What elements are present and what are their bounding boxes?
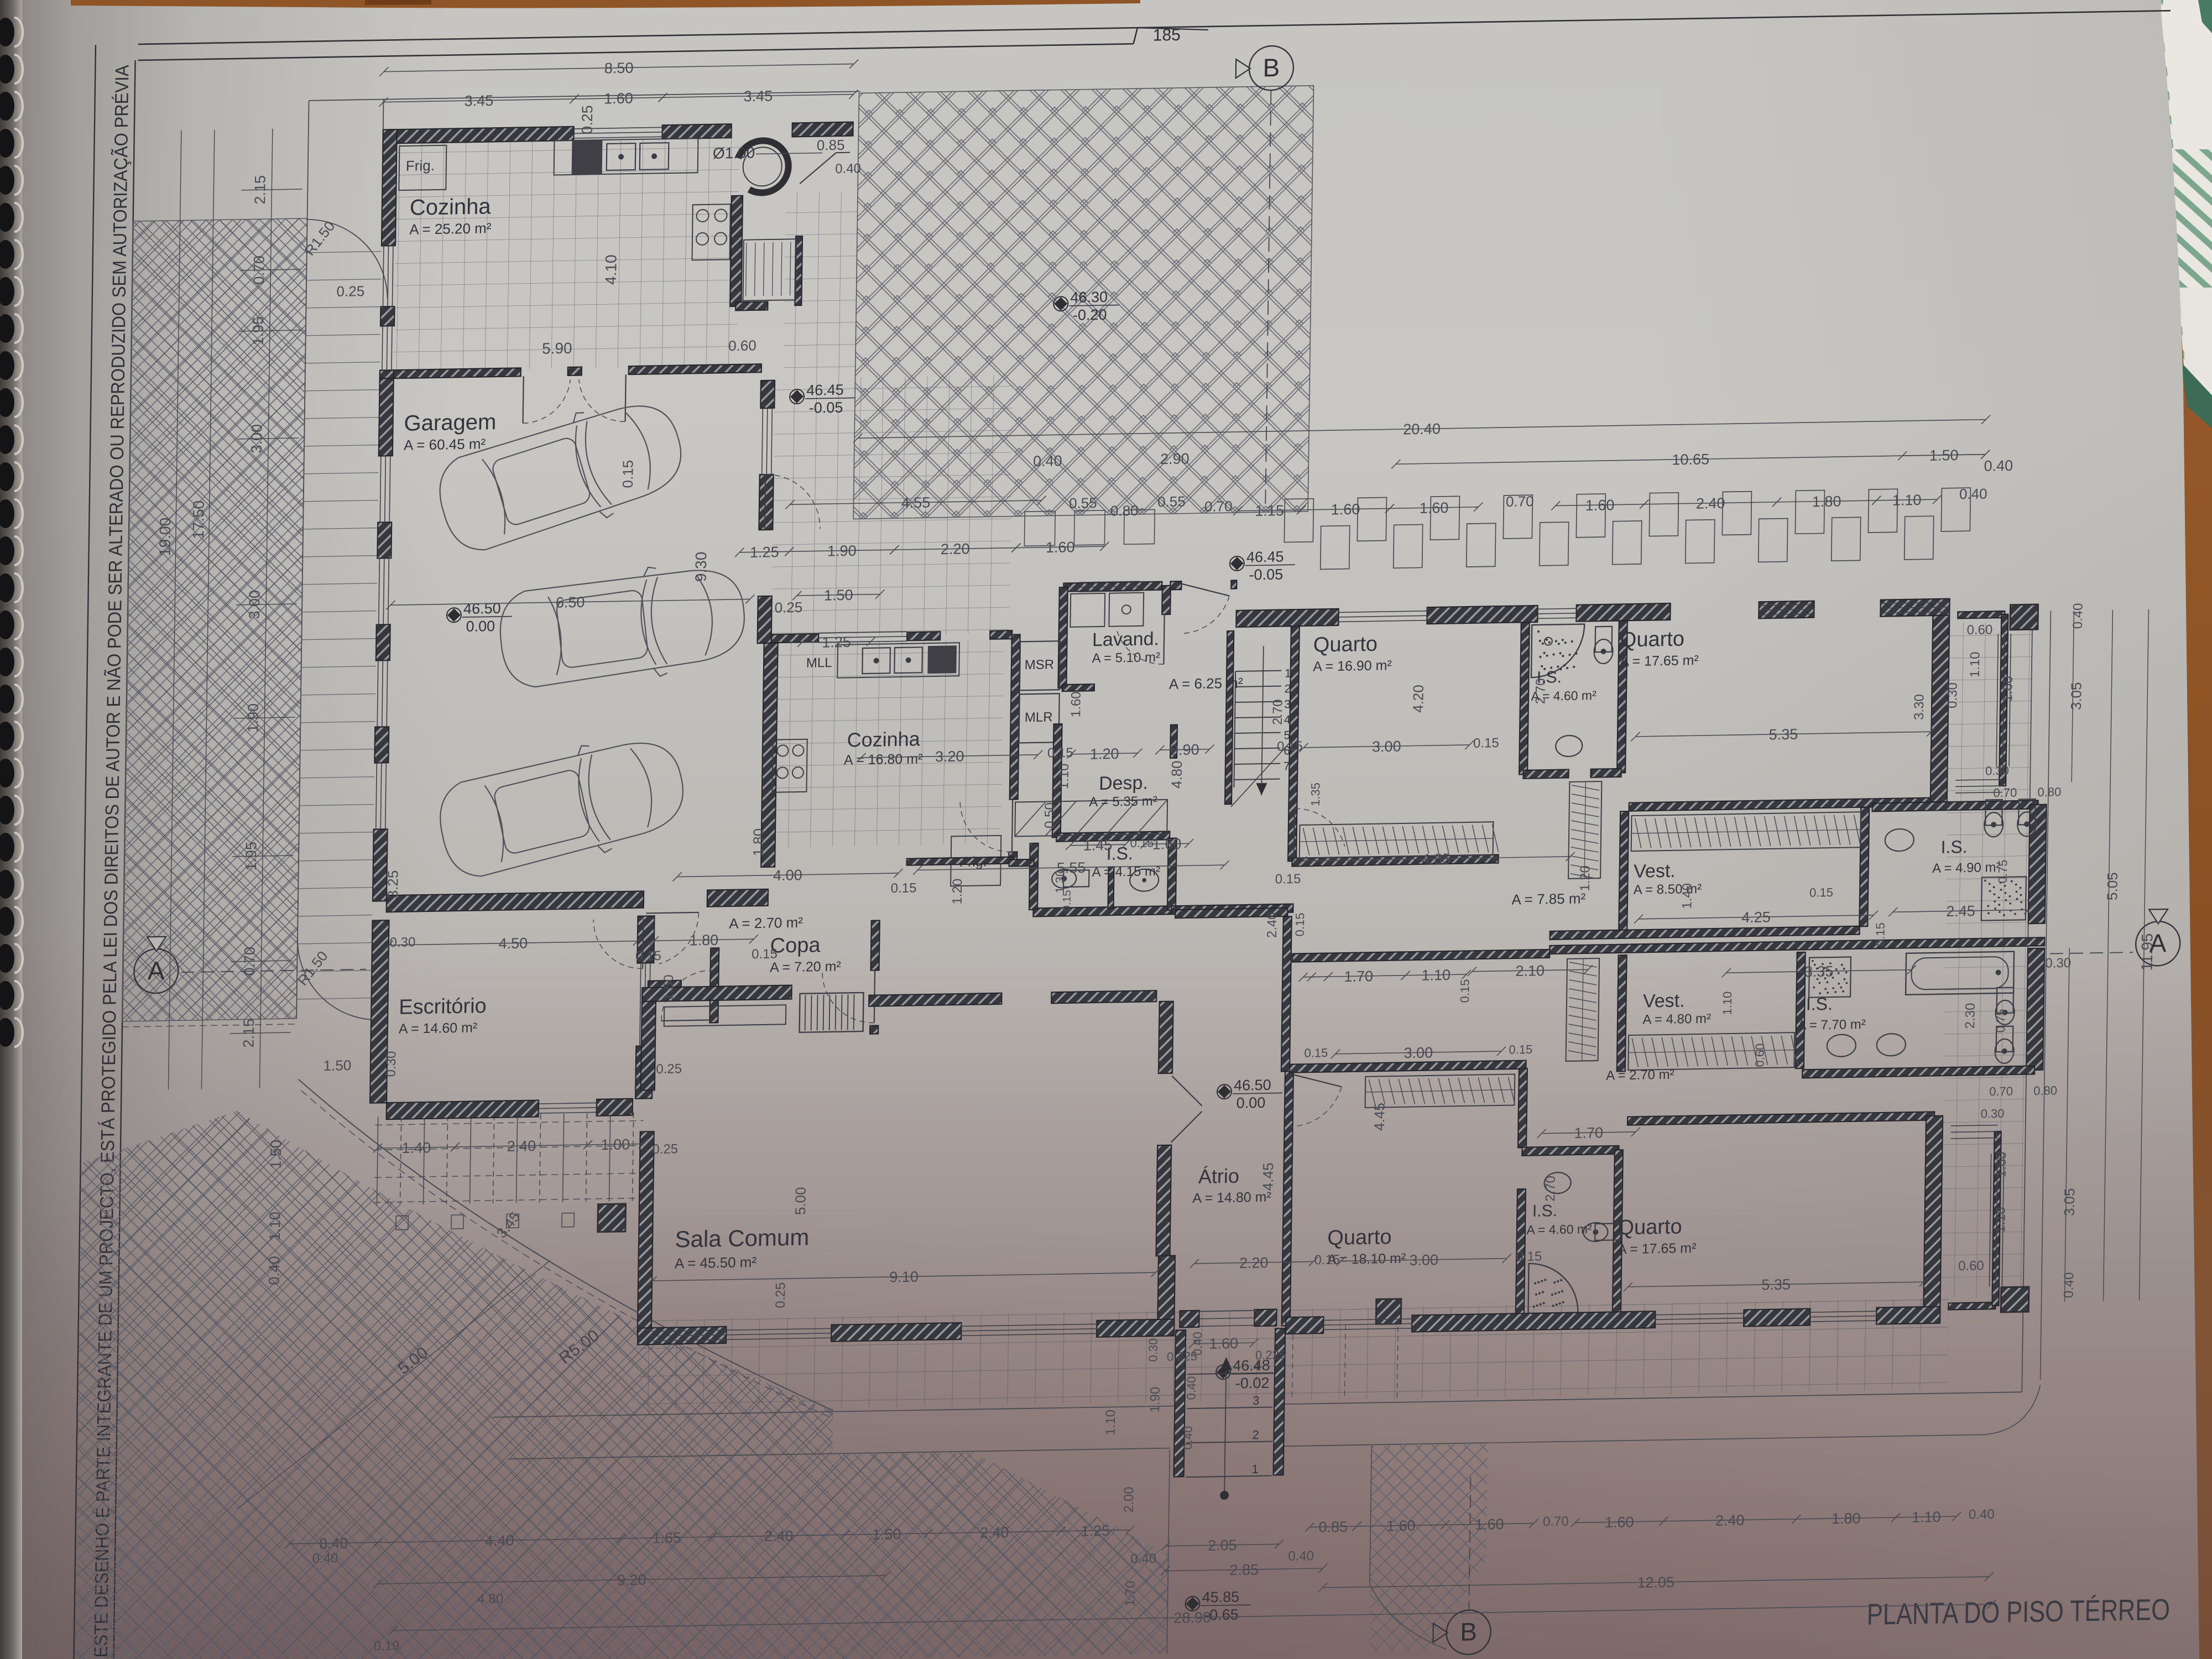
svg-text:17.50: 17.50 xyxy=(190,500,207,540)
svg-text:5.00: 5.00 xyxy=(792,1187,809,1215)
svg-text:4.80: 4.80 xyxy=(477,1591,503,1606)
svg-text:2.85: 2.85 xyxy=(1229,1561,1259,1578)
svg-text:1.90: 1.90 xyxy=(1147,1386,1163,1412)
svg-text:0.60: 0.60 xyxy=(728,337,757,354)
svg-text:I.S.: I.S. xyxy=(1532,1202,1557,1220)
svg-text:1.70: 1.70 xyxy=(1123,1580,1138,1606)
svg-text:1.80: 1.80 xyxy=(750,828,767,857)
svg-text:2.05: 2.05 xyxy=(1208,1537,1237,1554)
svg-text:1.60: 1.60 xyxy=(1420,499,1449,517)
svg-text:0.30: 0.30 xyxy=(1985,764,2009,778)
svg-text:2.40: 2.40 xyxy=(1715,1512,1745,1529)
svg-text:4.20: 4.20 xyxy=(1410,685,1427,713)
svg-text:B: B xyxy=(1460,1617,1477,1646)
svg-text:1.10: 1.10 xyxy=(1892,492,1922,509)
svg-text:4.50: 4.50 xyxy=(498,935,528,952)
svg-text:1.80: 1.80 xyxy=(1832,1510,1861,1527)
svg-text:8.50: 8.50 xyxy=(604,60,634,77)
svg-text:1.10: 1.10 xyxy=(1968,651,1983,677)
svg-text:1.20: 1.20 xyxy=(950,879,966,905)
svg-text:0.15: 0.15 xyxy=(1473,735,1499,751)
svg-text:A = 4.90 m²: A = 4.90 m² xyxy=(1932,860,2001,876)
svg-text:5.90: 5.90 xyxy=(542,340,572,357)
svg-text:0.70: 0.70 xyxy=(1204,498,1233,515)
svg-text:5.35: 5.35 xyxy=(1768,726,1798,743)
svg-text:0.75: 0.75 xyxy=(1994,1009,2008,1032)
svg-text:2.45: 2.45 xyxy=(1946,902,1975,920)
svg-text:4.45: 4.45 xyxy=(1260,1162,1277,1191)
svg-text:1.35: 1.35 xyxy=(1308,782,1323,806)
svg-text:6.50: 6.50 xyxy=(556,594,585,611)
svg-text:0.80: 0.80 xyxy=(1110,502,1139,519)
svg-text:2.70: 2.70 xyxy=(1270,699,1286,725)
svg-text:0.40: 0.40 xyxy=(1984,457,2013,474)
svg-text:0.40: 0.40 xyxy=(1033,452,1062,469)
svg-text:Vest.: Vest. xyxy=(1643,990,1685,1011)
svg-text:1.60: 1.60 xyxy=(1475,1516,1504,1533)
svg-text:9.10: 9.10 xyxy=(889,1269,919,1286)
svg-text:0.15: 0.15 xyxy=(752,947,778,962)
svg-text:0.25: 0.25 xyxy=(579,105,596,134)
svg-text:0.60: 0.60 xyxy=(1958,1258,1984,1274)
svg-text:3.00: 3.00 xyxy=(1404,1044,1433,1061)
svg-text:0.40: 0.40 xyxy=(2070,603,2086,629)
svg-text:0.40: 0.40 xyxy=(266,1256,283,1285)
svg-text:0.15: 0.15 xyxy=(1509,1042,1532,1057)
svg-text:-0.02: -0.02 xyxy=(1235,1375,1270,1392)
svg-text:0.25: 0.25 xyxy=(656,1061,682,1077)
svg-text:3.35: 3.35 xyxy=(1804,963,1834,980)
svg-text:-0.05: -0.05 xyxy=(809,399,843,416)
svg-text:1.25: 1.25 xyxy=(1081,1522,1110,1540)
svg-text:0.60: 0.60 xyxy=(1966,622,1992,638)
svg-text:0.40: 0.40 xyxy=(319,1535,348,1552)
svg-text:Lavand.: Lavand. xyxy=(1092,628,1159,650)
svg-text:0.40: 0.40 xyxy=(1959,486,1987,503)
svg-text:1.90: 1.90 xyxy=(827,542,857,560)
svg-text:2.40: 2.40 xyxy=(764,1527,794,1545)
svg-text:19.00: 19.00 xyxy=(156,518,174,557)
svg-text:9.20: 9.20 xyxy=(617,1572,646,1589)
svg-text:0.15: 0.15 xyxy=(1516,1249,1542,1265)
svg-text:3: 3 xyxy=(1253,1394,1260,1407)
svg-text:0.15: 0.15 xyxy=(619,460,637,488)
svg-text:1.60: 1.60 xyxy=(1331,501,1360,518)
svg-text:3.25: 3.25 xyxy=(384,870,401,898)
svg-text:1.50: 1.50 xyxy=(661,974,676,1000)
svg-text:0.40: 0.40 xyxy=(1184,1376,1198,1400)
svg-text:0.19: 0.19 xyxy=(374,1639,400,1654)
svg-text:Cozinha: Cozinha xyxy=(847,727,921,751)
svg-text:A = 7.85 m²: A = 7.85 m² xyxy=(1511,890,1585,907)
svg-text:2: 2 xyxy=(1252,1428,1259,1442)
svg-text:2.20: 2.20 xyxy=(1239,1254,1269,1271)
svg-text:B: B xyxy=(1262,53,1280,82)
svg-text:0.55: 0.55 xyxy=(1069,494,1097,512)
svg-text:0.25: 0.25 xyxy=(773,1282,789,1308)
svg-text:46.30: 46.30 xyxy=(1070,289,1108,306)
svg-text:Copa: Copa xyxy=(770,933,821,958)
svg-text:0.80: 0.80 xyxy=(2033,1083,2057,1098)
svg-text:A = 14.80 m²: A = 14.80 m² xyxy=(1192,1190,1271,1206)
svg-text:0.15: 0.15 xyxy=(1277,739,1303,754)
svg-text:A = 4.80 m²: A = 4.80 m² xyxy=(1642,1011,1711,1027)
svg-text:Desp.: Desp. xyxy=(1099,773,1148,794)
svg-text:A = 5.35 m²: A = 5.35 m² xyxy=(1089,794,1157,810)
svg-text:1.40: 1.40 xyxy=(401,1139,431,1156)
svg-text:2.00: 2.00 xyxy=(1121,1486,1137,1512)
svg-text:Sala Comum: Sala Comum xyxy=(675,1224,809,1252)
svg-text:45.85: 45.85 xyxy=(1202,1588,1239,1605)
svg-text:0.25: 0.25 xyxy=(652,1141,678,1157)
svg-text:3.00: 3.00 xyxy=(1409,1251,1438,1269)
svg-text:0.225: 0.225 xyxy=(1255,1348,1286,1362)
svg-text:46.50: 46.50 xyxy=(1234,1077,1271,1094)
svg-text:1.25: 1.25 xyxy=(750,544,779,561)
svg-text:Ø1.00: Ø1.00 xyxy=(713,144,755,162)
svg-text:0.15: 0.15 xyxy=(635,948,661,964)
svg-text:2.40: 2.40 xyxy=(507,1138,536,1155)
svg-text:1.40: 1.40 xyxy=(1679,883,1695,909)
svg-text:3.00: 3.00 xyxy=(1372,738,1401,755)
svg-text:1.60: 1.60 xyxy=(1152,836,1182,853)
svg-text:0.15: 0.15 xyxy=(1304,1046,1328,1060)
svg-text:0.70: 0.70 xyxy=(1506,493,1534,510)
svg-text:20.40: 20.40 xyxy=(1403,420,1441,437)
svg-text:11.95: 11.95 xyxy=(2138,933,2156,971)
svg-text:I.S.: I.S. xyxy=(1806,994,1833,1014)
svg-text:0.15: 0.15 xyxy=(1809,885,1833,900)
svg-text:1.60: 1.60 xyxy=(1605,1514,1634,1531)
svg-text:0.25: 0.25 xyxy=(774,599,802,616)
svg-text:3.20: 3.20 xyxy=(935,748,964,765)
svg-text:1.50: 1.50 xyxy=(824,587,853,604)
svg-text:9.30: 9.30 xyxy=(692,551,710,582)
svg-text:0.40: 0.40 xyxy=(1130,1551,1156,1567)
svg-text:2.10: 2.10 xyxy=(1515,962,1545,979)
svg-text:A = 17.65 m²: A = 17.65 m² xyxy=(1620,653,1699,669)
svg-text:Quarto: Quarto xyxy=(1327,1225,1392,1250)
svg-text:46.45: 46.45 xyxy=(806,382,844,399)
svg-text:1.20: 1.20 xyxy=(1090,745,1119,763)
svg-text:A = 5.10 m²: A = 5.10 m² xyxy=(1092,650,1160,666)
svg-text:5.05: 5.05 xyxy=(2104,872,2121,900)
svg-text:1.80: 1.80 xyxy=(1812,493,1841,510)
svg-text:10.65: 10.65 xyxy=(1672,451,1709,468)
svg-text:1.15: 1.15 xyxy=(1255,502,1284,519)
svg-text:1.00: 1.00 xyxy=(601,1136,630,1153)
svg-text:1.10: 1.10 xyxy=(1912,1509,1941,1526)
svg-text:4.10: 4.10 xyxy=(602,254,620,285)
svg-text:2.70: 2.70 xyxy=(1533,678,1548,704)
svg-text:MLR: MLR xyxy=(1025,709,1053,725)
svg-text:A = 14.60 m²: A = 14.60 m² xyxy=(399,1020,478,1036)
svg-text:0.60: 0.60 xyxy=(1752,1044,1767,1067)
svg-text:0.00: 0.00 xyxy=(1236,1094,1265,1112)
svg-text:2.30: 2.30 xyxy=(1963,1003,1978,1029)
svg-text:0.50: 0.50 xyxy=(1042,802,1057,828)
svg-text:0.80: 0.80 xyxy=(2037,785,2061,799)
svg-text:1.60: 1.60 xyxy=(1046,539,1075,556)
svg-text:Quarto: Quarto xyxy=(1313,633,1378,657)
svg-text:A = 16.90 m²: A = 16.90 m² xyxy=(1313,658,1392,674)
svg-text:0.85: 0.85 xyxy=(1318,1519,1348,1536)
svg-text:1.10: 1.10 xyxy=(1421,967,1451,984)
svg-text:1.60: 1.60 xyxy=(1386,1517,1416,1535)
svg-text:1.50: 1.50 xyxy=(872,1526,901,1543)
svg-text:0.15: 0.15 xyxy=(891,880,917,896)
svg-text:4.45: 4.45 xyxy=(1371,1103,1388,1131)
svg-text:1.65: 1.65 xyxy=(652,1530,681,1547)
svg-text:46.45: 46.45 xyxy=(1246,549,1284,566)
svg-text:A = 45.50 m²: A = 45.50 m² xyxy=(675,1254,757,1271)
svg-text:5.55: 5.55 xyxy=(1057,859,1086,877)
svg-text:1.10: 1.10 xyxy=(267,1212,284,1241)
svg-text:12.05: 12.05 xyxy=(1637,1574,1674,1591)
svg-text:2.20: 2.20 xyxy=(941,540,970,557)
svg-text:1.60: 1.60 xyxy=(1068,691,1084,717)
svg-text:A = 60.45 m²: A = 60.45 m² xyxy=(404,435,486,453)
svg-text:1.10: 1.10 xyxy=(1993,1207,2008,1233)
svg-text:1.60: 1.60 xyxy=(604,90,633,107)
svg-text:2.40: 2.40 xyxy=(980,1524,1009,1541)
svg-text:0.85: 0.85 xyxy=(817,137,845,154)
svg-text:0.40: 0.40 xyxy=(1181,1426,1195,1449)
svg-text:1.50: 1.50 xyxy=(1929,447,1959,464)
svg-text:A = 25.20 m²: A = 25.20 m² xyxy=(409,220,492,237)
svg-text:0.70: 0.70 xyxy=(1989,1084,2013,1099)
svg-text:0.30: 0.30 xyxy=(2045,956,2071,971)
svg-text:2.70: 2.70 xyxy=(1543,1176,1558,1202)
svg-text:Átrio: Átrio xyxy=(1198,1165,1240,1188)
svg-text:-0.20: -0.20 xyxy=(1073,306,1107,324)
svg-text:Frig.: Frig. xyxy=(406,157,435,174)
svg-text:2.40: 2.40 xyxy=(1265,912,1280,938)
svg-text:1.10: 1.10 xyxy=(1056,763,1072,789)
svg-text:0.70: 0.70 xyxy=(1993,786,2017,800)
svg-text:0.30: 0.30 xyxy=(384,1051,399,1077)
svg-text:1.10: 1.10 xyxy=(1103,1410,1119,1436)
svg-text:0.15: 0.15 xyxy=(1458,979,1472,1003)
svg-text:4.40: 4.40 xyxy=(485,1532,514,1550)
svg-text:4.25: 4.25 xyxy=(1741,909,1771,926)
svg-text:0.15: 0.15 xyxy=(1293,912,1307,936)
svg-text:1.50: 1.50 xyxy=(323,1057,351,1074)
svg-text:Escritório: Escritório xyxy=(399,994,487,1019)
svg-text:A = 17.65 m²: A = 17.65 m² xyxy=(1618,1240,1697,1257)
svg-text:3.45: 3.45 xyxy=(464,92,493,109)
svg-text:A = 7.70 m²: A = 7.70 m² xyxy=(1797,1017,1866,1033)
svg-text:0.75: 0.75 xyxy=(1996,859,2010,883)
svg-text:0.40: 0.40 xyxy=(835,161,861,176)
svg-text:0.15: 0.15 xyxy=(1047,745,1073,761)
svg-text:4.00: 4.00 xyxy=(773,867,802,884)
svg-text:1.80: 1.80 xyxy=(689,932,718,949)
svg-text:1.50: 1.50 xyxy=(267,1140,284,1169)
svg-text:Quarto: Quarto xyxy=(1620,628,1685,652)
svg-text:A = 4.60 m²: A = 4.60 m² xyxy=(1526,1222,1592,1237)
svg-text:0.90: 0.90 xyxy=(1170,742,1199,759)
svg-text:1.25: 1.25 xyxy=(822,634,851,651)
svg-text:0.40: 0.40 xyxy=(2062,1272,2077,1298)
svg-text:0.30: 0.30 xyxy=(1945,682,1960,708)
svg-text:0.00: 0.00 xyxy=(466,618,495,635)
svg-text:3.45: 3.45 xyxy=(743,88,773,105)
svg-text:1.70: 1.70 xyxy=(1344,968,1373,985)
svg-text:1.20: 1.20 xyxy=(1578,865,1593,891)
svg-text:A: A xyxy=(148,956,165,985)
svg-text:Cozinha: Cozinha xyxy=(410,194,492,220)
svg-text:3.05: 3.05 xyxy=(2061,1188,2078,1216)
svg-text:5.35: 5.35 xyxy=(1761,1276,1791,1293)
svg-text:4.85: 4.85 xyxy=(1422,851,1451,868)
svg-text:0.40: 0.40 xyxy=(312,1551,338,1566)
svg-text:1.60: 1.60 xyxy=(1585,497,1615,514)
svg-text:0.30: 0.30 xyxy=(1146,1338,1160,1362)
svg-text:0.25: 0.25 xyxy=(336,283,364,300)
svg-text:0.15: 0.15 xyxy=(1873,922,1887,946)
svg-text:1.70: 1.70 xyxy=(1574,1124,1603,1141)
svg-text:4.55: 4.55 xyxy=(901,494,930,512)
svg-text:0.40: 0.40 xyxy=(1969,1507,1995,1522)
svg-text:1.60: 1.60 xyxy=(2000,676,2016,702)
svg-text:0.15: 0.15 xyxy=(1275,872,1301,887)
svg-text:0.30: 0.30 xyxy=(1981,1107,2005,1121)
svg-text:0.55: 0.55 xyxy=(1157,493,1186,510)
svg-text:A = 7.20 m²: A = 7.20 m² xyxy=(770,959,841,975)
svg-text:Quarto: Quarto xyxy=(1618,1215,1682,1239)
svg-text:3.05: 3.05 xyxy=(2068,682,2085,710)
svg-text:2.90: 2.90 xyxy=(1160,450,1190,467)
svg-text:28.90: 28.90 xyxy=(1173,1609,1211,1626)
svg-text:0.70: 0.70 xyxy=(1543,1514,1569,1530)
svg-text:1.10: 1.10 xyxy=(1720,992,1735,1015)
svg-text:Vest.: Vest. xyxy=(1634,860,1676,882)
svg-text:2.40: 2.40 xyxy=(1696,495,1725,512)
svg-text:Garagem: Garagem xyxy=(404,410,496,436)
svg-text:1: 1 xyxy=(1251,1462,1259,1476)
svg-text:0.30: 0.30 xyxy=(389,935,415,950)
svg-text:1.60: 1.60 xyxy=(1209,1335,1238,1352)
svg-text:1.45: 1.45 xyxy=(1083,837,1113,854)
svg-text:-0.05: -0.05 xyxy=(1249,566,1283,583)
svg-text:1.60: 1.60 xyxy=(1994,1151,2010,1177)
svg-text:4.80: 4.80 xyxy=(1168,760,1185,789)
svg-text:A = 2.70 m²: A = 2.70 m² xyxy=(729,914,803,932)
svg-text:0.40: 0.40 xyxy=(1191,1332,1205,1355)
svg-text:0.15: 0.15 xyxy=(1130,836,1154,850)
svg-text:3.30: 3.30 xyxy=(1912,694,1927,720)
svg-text:I.S.: I.S. xyxy=(1940,837,1967,857)
svg-text:MSR: MSR xyxy=(1025,657,1055,672)
svg-text:PLANTA DO PISO TÉRREO: PLANTA DO PISO TÉRREO xyxy=(1867,1593,2171,1631)
svg-text:MLL: MLL xyxy=(806,655,832,671)
svg-text:A = 16.80 m²: A = 16.80 m² xyxy=(844,751,923,768)
svg-text:0.40: 0.40 xyxy=(1288,1548,1314,1564)
svg-text:46.50: 46.50 xyxy=(463,600,501,617)
svg-text:0.15: 0.15 xyxy=(1061,890,1073,911)
